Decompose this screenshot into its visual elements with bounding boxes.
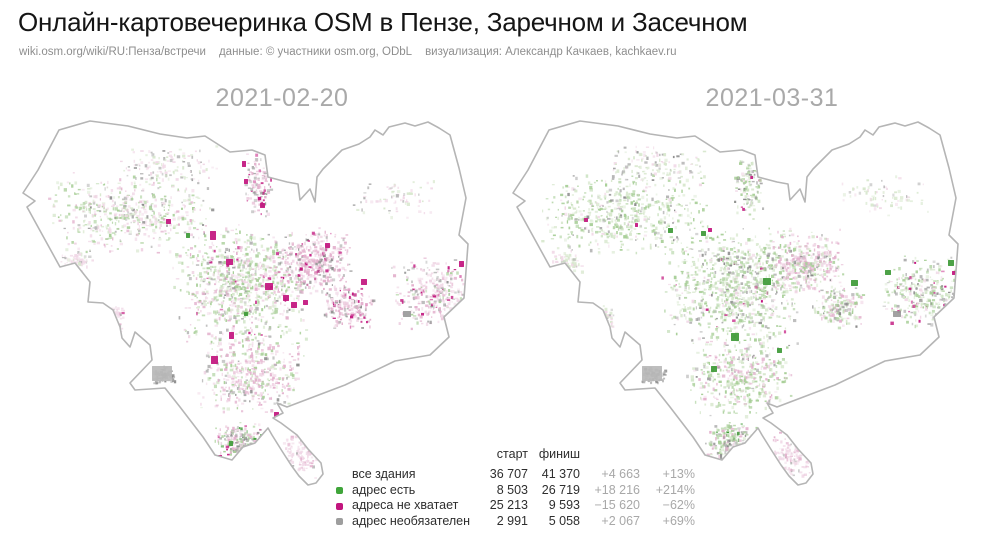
- legend-swatch-green: [336, 487, 343, 494]
- map-date-finish: 2021-03-31: [505, 83, 985, 113]
- start-value: 25 213: [476, 498, 528, 514]
- viz-credit-text: визуализация: Александр Качкаев, kachkae…: [425, 46, 676, 58]
- start-value: 36 707: [476, 467, 528, 483]
- stats-row-address-present: адрес есть 8 503 26 719 +18 216 +214%: [336, 483, 695, 499]
- finish-value: 26 719: [528, 483, 580, 499]
- city-map-start: [15, 113, 495, 493]
- page-title: Онлайн-картовечеринка OSM в Пензе, Зареч…: [18, 7, 747, 38]
- stats-header-row: старт финиш: [336, 446, 695, 467]
- delta-value: +18 216: [580, 483, 640, 499]
- stats-table: старт финиш все здания 36 707 41 370 +4 …: [336, 446, 695, 530]
- pct-value: +214%: [640, 483, 695, 499]
- row-label: все здания: [352, 467, 416, 483]
- data-credit-text: данные: © участники osm.org, ODbL: [219, 46, 412, 58]
- row-label: адреса не хватает: [352, 498, 458, 514]
- pct-value: −62%: [640, 498, 695, 514]
- stats-row-all-buildings: все здания 36 707 41 370 +4 663 +13%: [336, 467, 695, 483]
- start-value: 8 503: [476, 483, 528, 499]
- delta-value: −15 620: [580, 498, 640, 514]
- delta-value: +2 067: [580, 514, 640, 530]
- pct-value: +69%: [640, 514, 695, 530]
- map-panel-finish: 2021-03-31: [505, 83, 985, 493]
- finish-value: 5 058: [528, 514, 580, 530]
- delta-value: +4 663: [580, 467, 640, 483]
- legend-swatch-magenta: [336, 503, 343, 510]
- map-panel-start: 2021-02-20: [15, 83, 495, 493]
- row-label: адрес необязателен: [352, 514, 470, 530]
- start-value: 2 991: [476, 514, 528, 530]
- row-label: адрес есть: [352, 483, 415, 499]
- finish-value: 9 593: [528, 498, 580, 514]
- legend-swatch-gray: [336, 518, 343, 525]
- col-header-finish: финиш: [528, 446, 580, 467]
- map-date-start: 2021-02-20: [15, 83, 495, 113]
- city-map-finish: [505, 113, 985, 493]
- col-header-start: старт: [476, 446, 528, 467]
- stats-row-address-optional: адрес необязателен 2 991 5 058 +2 067 +6…: [336, 514, 695, 530]
- pct-value: +13%: [640, 467, 695, 483]
- finish-value: 41 370: [528, 467, 580, 483]
- credits-line: wiki.osm.org/wiki/RU:Пенза/встречиданные…: [19, 46, 689, 58]
- wiki-link-text: wiki.osm.org/wiki/RU:Пенза/встречи: [19, 46, 206, 58]
- stats-row-address-missing: адреса не хватает 25 213 9 593 −15 620 −…: [336, 498, 695, 514]
- infographic-stage: Онлайн-картовечеринка OSM в Пензе, Зареч…: [0, 0, 1000, 550]
